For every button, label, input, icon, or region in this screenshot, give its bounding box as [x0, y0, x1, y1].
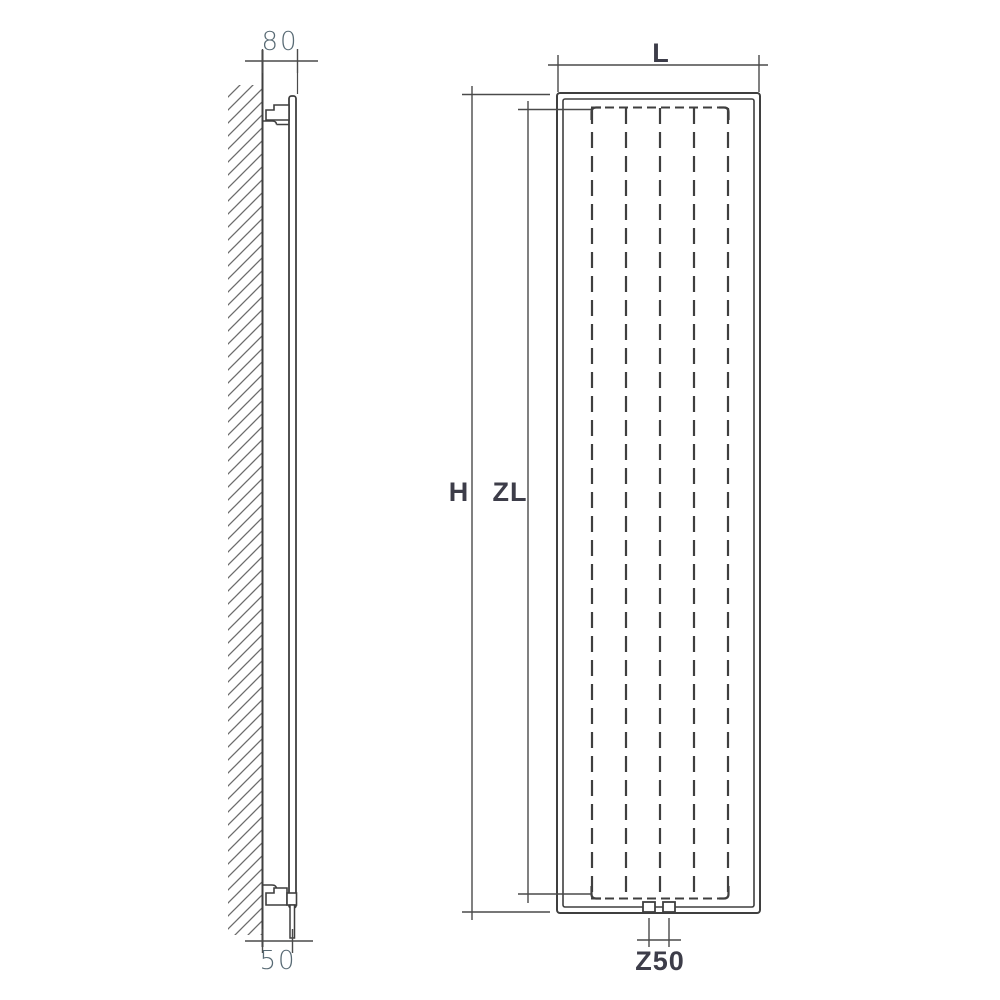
dim-label-Z50: Z50: [628, 946, 692, 976]
connection-nozzle-left: [643, 902, 655, 912]
top-bracket: [262, 105, 289, 125]
hidden-water-channels: [591, 108, 729, 899]
radiator-front-outer-frame: [557, 93, 760, 913]
technical-drawing: 80 50 L H ZL Z50: [0, 0, 1000, 1000]
dim-label-H: H: [442, 477, 476, 507]
connection-nozzle-right: [663, 902, 675, 912]
dim-label-80: 80: [248, 27, 312, 57]
dimension-Z50: [637, 918, 681, 947]
bottom-bracket: [262, 885, 297, 938]
dim-label-ZL: ZL: [487, 477, 533, 507]
radiator-side-panel: [289, 96, 296, 908]
dim-label-50: 50: [246, 946, 310, 976]
dim-label-L: L: [641, 38, 681, 68]
wall-hatch: [228, 85, 262, 935]
connection-elbow: [287, 893, 297, 905]
side-view: [228, 49, 318, 953]
